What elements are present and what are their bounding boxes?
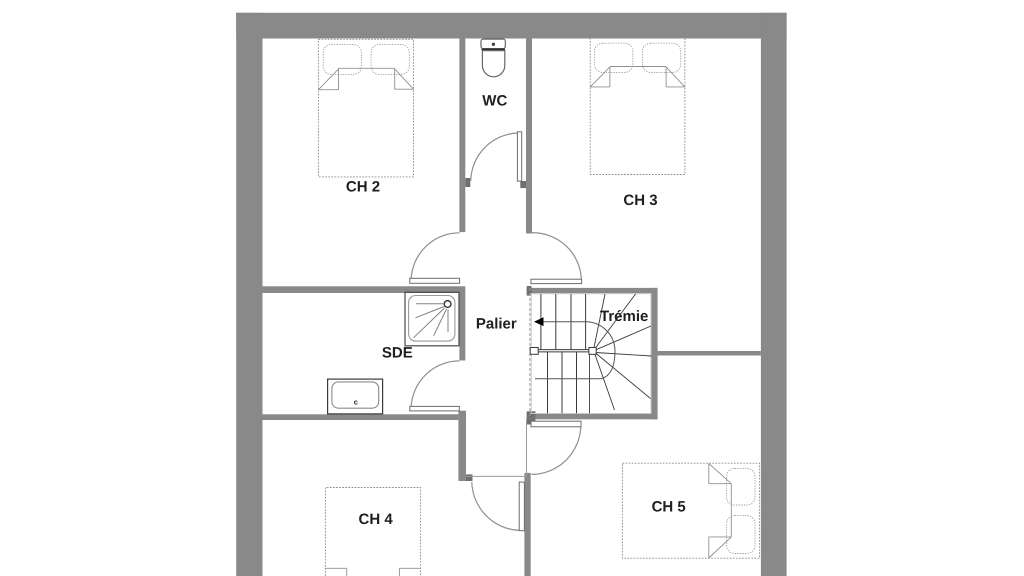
svg-text:c: c xyxy=(354,397,358,406)
svg-text:CH 3: CH 3 xyxy=(623,192,657,209)
svg-text:Trémie: Trémie xyxy=(600,308,648,325)
svg-text:CH 2: CH 2 xyxy=(346,179,380,196)
svg-text:SDE: SDE xyxy=(382,344,413,361)
svg-text:Palier: Palier xyxy=(476,316,517,333)
svg-text:WC: WC xyxy=(482,92,507,109)
svg-text:CH 5: CH 5 xyxy=(652,498,686,515)
svg-text:CH 4: CH 4 xyxy=(359,511,394,528)
